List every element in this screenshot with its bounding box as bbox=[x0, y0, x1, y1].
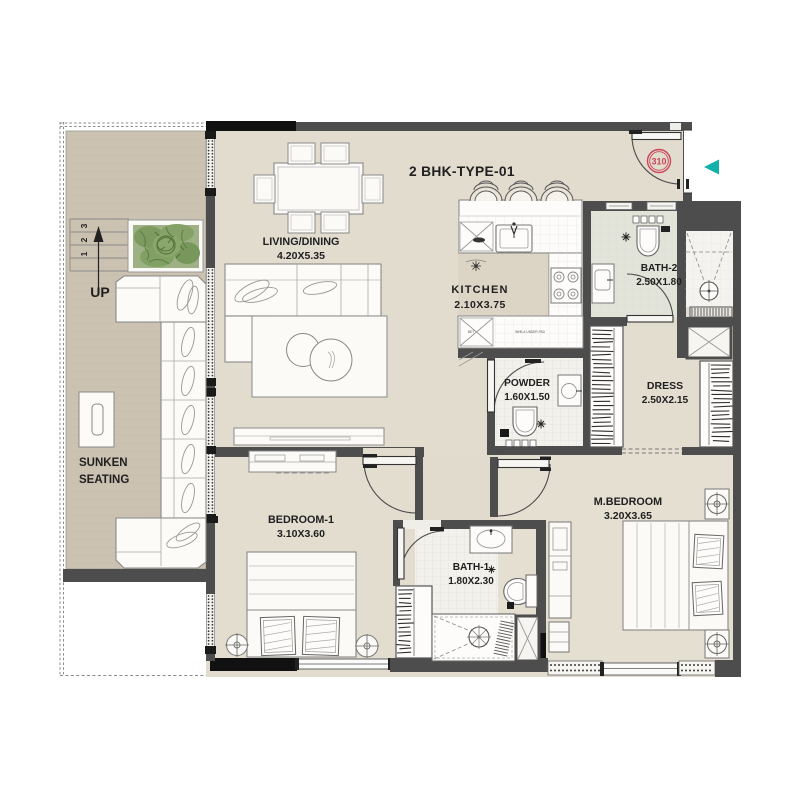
svg-text:BET: BET bbox=[468, 330, 474, 334]
svg-text:1: 1 bbox=[79, 251, 89, 256]
svg-text:M.BEDROOM: M.BEDROOM bbox=[594, 496, 662, 508]
svg-text:3.20X3.65: 3.20X3.65 bbox=[604, 510, 652, 522]
svg-text:1.60X1.50: 1.60X1.50 bbox=[504, 392, 550, 403]
svg-text:POWDER: POWDER bbox=[504, 378, 550, 389]
svg-text:1.80X2.30: 1.80X2.30 bbox=[448, 576, 494, 587]
svg-text:SEATING: SEATING bbox=[79, 474, 129, 486]
svg-text:2.10X3.75: 2.10X3.75 bbox=[454, 299, 505, 311]
svg-text:310: 310 bbox=[651, 157, 666, 167]
svg-text:BEDROOM-1: BEDROOM-1 bbox=[268, 514, 334, 526]
svg-text:LIVING/DINING: LIVING/DINING bbox=[263, 236, 340, 248]
svg-text:SUNKEN: SUNKEN bbox=[79, 457, 128, 469]
svg-text:3.10X3.60: 3.10X3.60 bbox=[277, 528, 325, 540]
svg-text:DRESS: DRESS bbox=[647, 380, 683, 392]
svg-text:4.20X5.35: 4.20X5.35 bbox=[277, 250, 325, 262]
svg-text:2 BHK-TYPE-01: 2 BHK-TYPE-01 bbox=[409, 164, 515, 179]
svg-text:BATH-2: BATH-2 bbox=[641, 263, 678, 274]
svg-text:2.50X2.15: 2.50X2.15 bbox=[642, 395, 689, 406]
svg-text:WHB & UNDER PAD: WHB & UNDER PAD bbox=[515, 330, 546, 334]
svg-text:3: 3 bbox=[79, 223, 89, 228]
svg-text:2: 2 bbox=[79, 237, 89, 242]
svg-text:BATH-1: BATH-1 bbox=[453, 562, 490, 573]
svg-text:KITCHEN: KITCHEN bbox=[451, 284, 508, 296]
svg-text:UP: UP bbox=[90, 284, 109, 300]
svg-text:2.50X1.80: 2.50X1.80 bbox=[636, 277, 682, 288]
